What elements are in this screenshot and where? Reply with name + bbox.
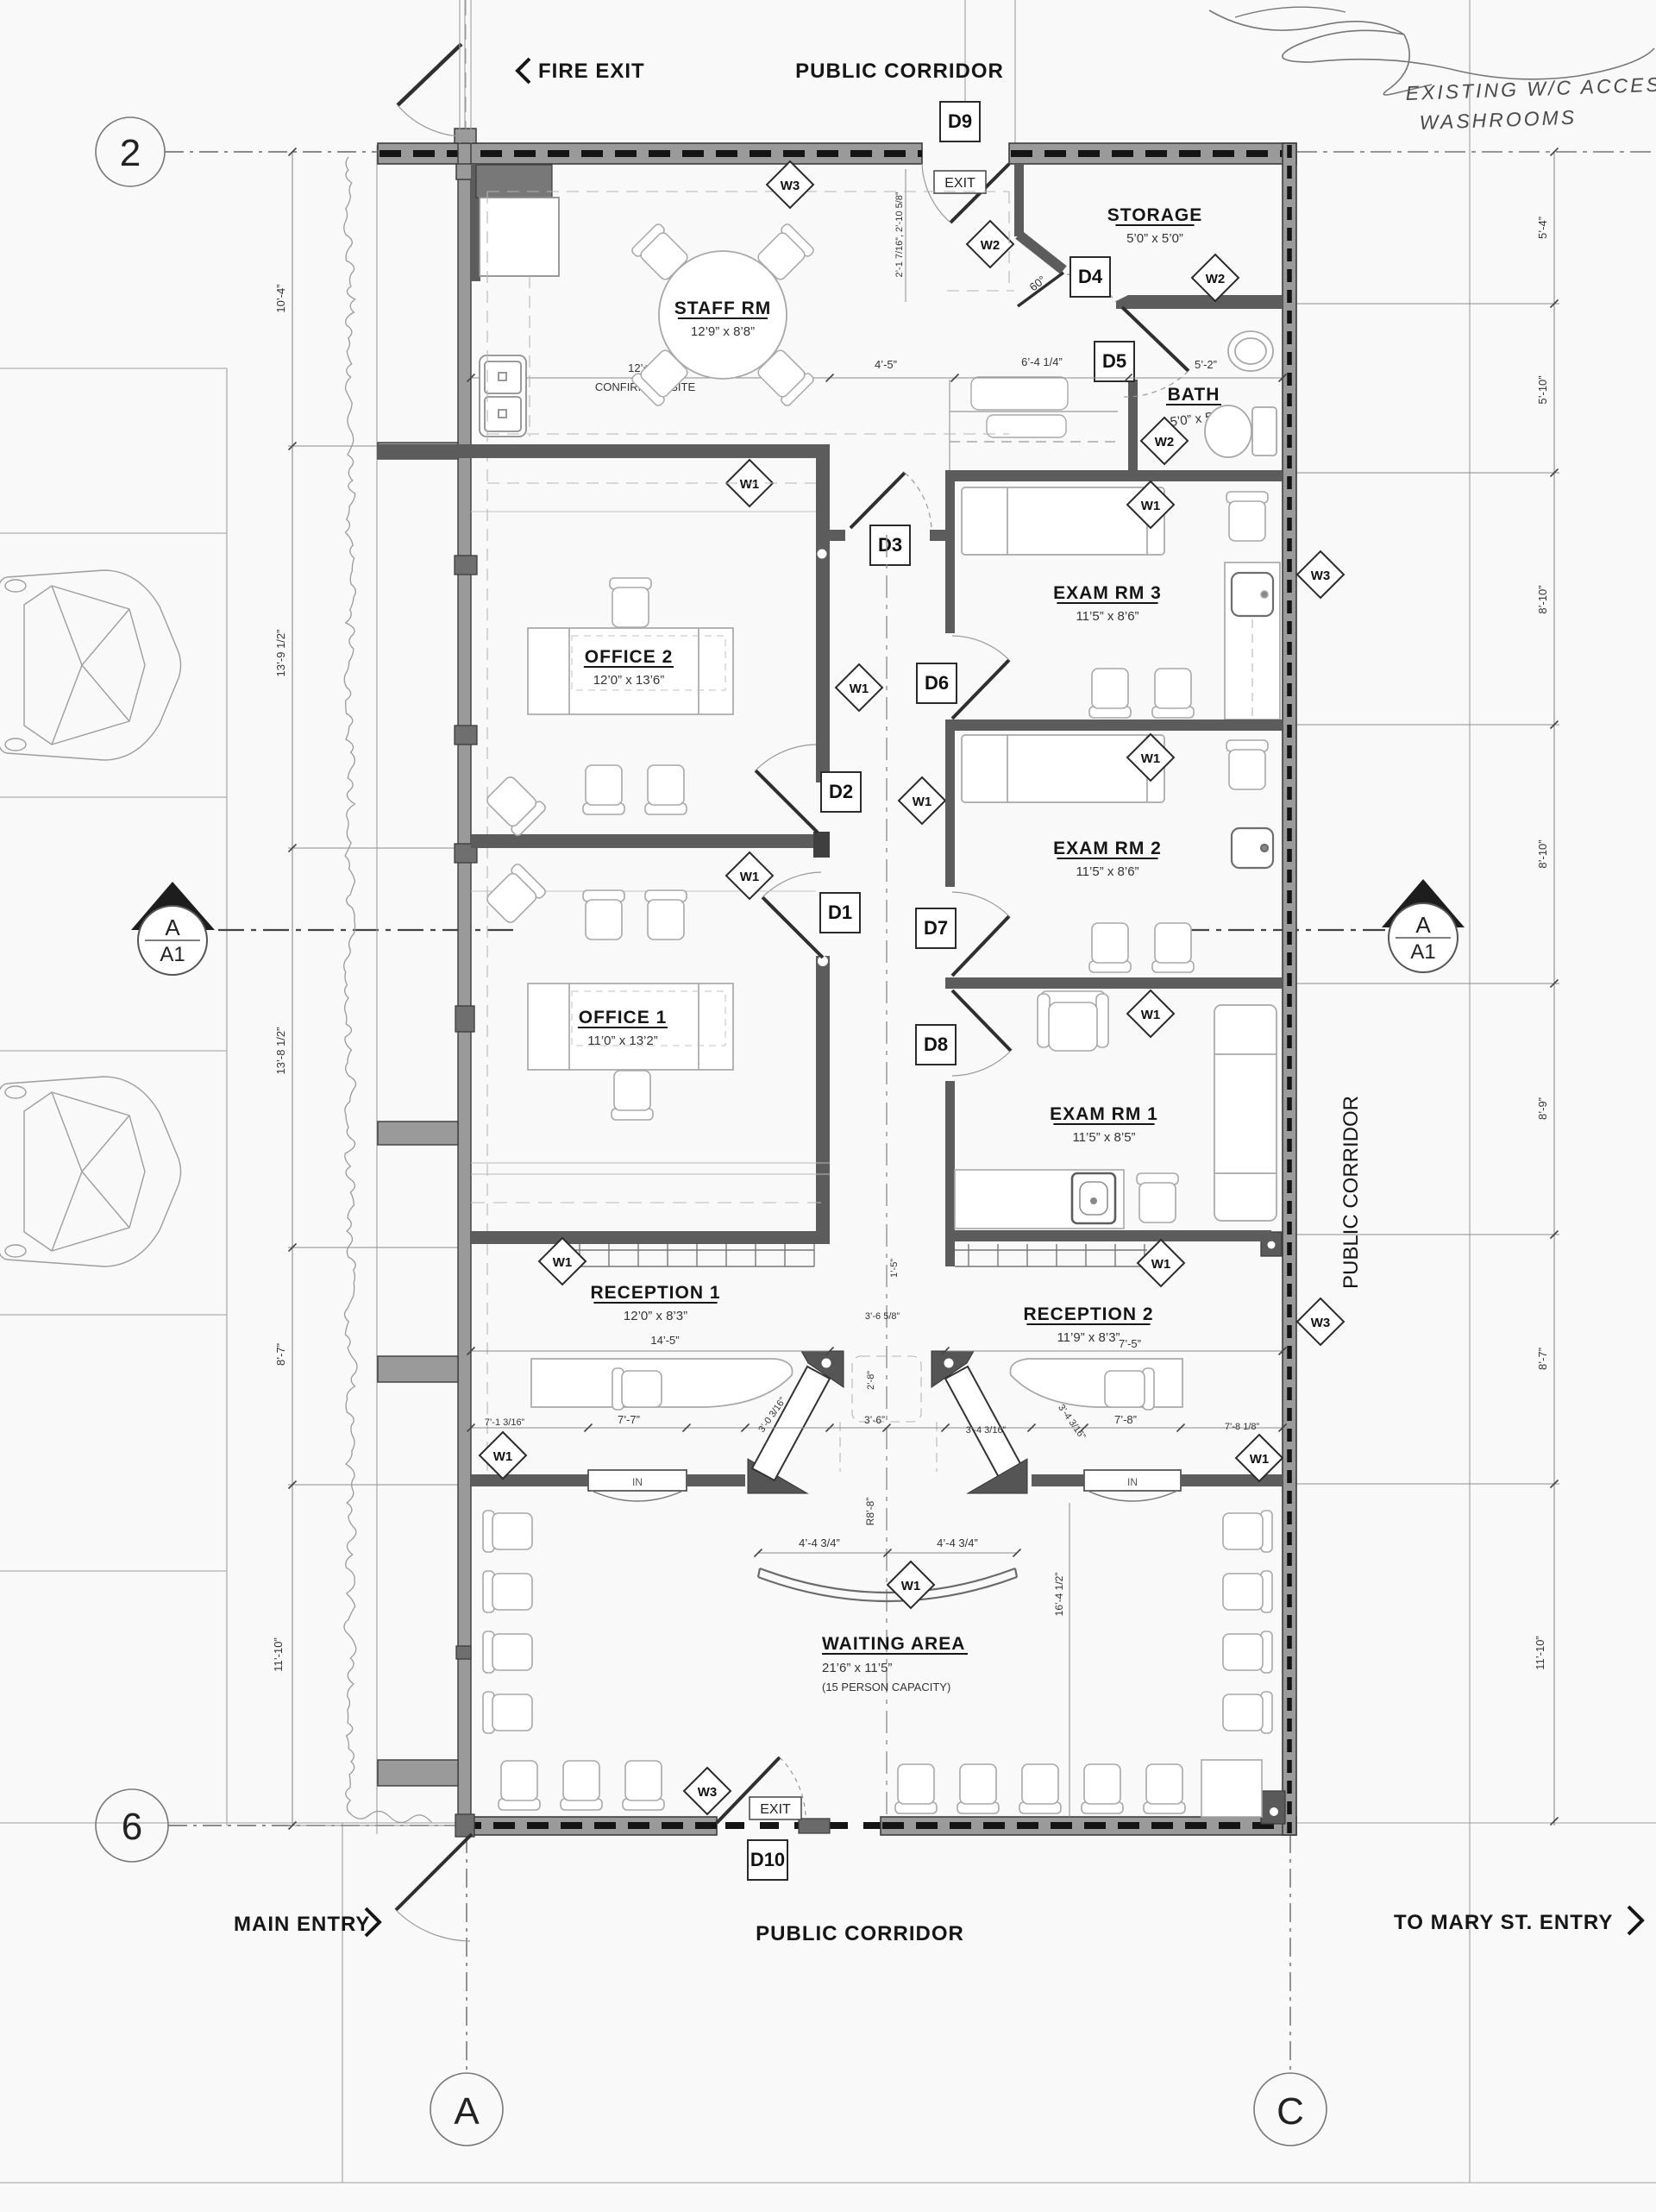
- svg-text:11’5” x 8’6”: 11’5” x 8’6”: [1076, 609, 1138, 624]
- svg-text:OFFICE 1: OFFICE 1: [579, 1008, 668, 1027]
- svg-text:W3: W3: [781, 179, 800, 193]
- svg-text:3’-4 3/16”: 3’-4 3/16”: [966, 1425, 1007, 1436]
- svg-text:IN: IN: [1127, 1476, 1138, 1488]
- svg-text:W1: W1: [553, 1255, 573, 1270]
- svg-text:STAFF RM: STAFF RM: [674, 298, 772, 318]
- svg-text:4’-4 3/4”: 4’-4 3/4”: [937, 1536, 978, 1549]
- svg-text:13’-8 1/2”: 13’-8 1/2”: [274, 1027, 287, 1075]
- svg-text:12’9” x 8’8”: 12’9” x 8’8”: [691, 324, 755, 339]
- svg-text:EXAM RM 1: EXAM RM 1: [1050, 1104, 1158, 1124]
- svg-text:D5: D5: [1102, 350, 1126, 372]
- svg-text:D3: D3: [878, 534, 902, 556]
- svg-text:21’6” x 11’5”: 21’6” x 11’5”: [822, 1661, 892, 1675]
- svg-text:D10: D10: [750, 1849, 785, 1870]
- svg-text:6: 6: [122, 1806, 142, 1848]
- svg-text:12’0” x 8’3”: 12’0” x 8’3”: [624, 1309, 687, 1323]
- svg-text:D8: D8: [924, 1034, 948, 1055]
- svg-text:1’-5”: 1’-5”: [889, 1259, 900, 1278]
- svg-text:A: A: [1415, 912, 1431, 938]
- svg-text:8’-7”: 8’-7”: [1536, 1348, 1549, 1370]
- svg-text:D6: D6: [925, 672, 949, 694]
- svg-text:W1: W1: [1141, 1008, 1161, 1022]
- svg-text:8’-7”: 8’-7”: [274, 1343, 287, 1366]
- svg-text:D2: D2: [829, 781, 853, 802]
- svg-text:EXIT: EXIT: [944, 176, 975, 191]
- svg-text:4’-4 3/4”: 4’-4 3/4”: [799, 1536, 840, 1549]
- svg-text:13’-9 1/2”: 13’-9 1/2”: [274, 630, 287, 677]
- svg-text:11’-10”: 11’-10”: [1534, 1636, 1546, 1670]
- svg-text:D9: D9: [948, 110, 972, 132]
- svg-text:W2: W2: [1155, 435, 1175, 449]
- svg-text:7’-1 3/16”: 7’-1 3/16”: [485, 1417, 525, 1428]
- svg-text:7’-8 1/8”: 7’-8 1/8”: [1225, 1422, 1260, 1432]
- svg-text:16’-4 1/2”: 16’-4 1/2”: [1053, 1573, 1065, 1617]
- svg-text:A1: A1: [160, 943, 185, 966]
- svg-text:5’-10”: 5’-10”: [1536, 375, 1549, 404]
- svg-text:11’-10”: 11’-10”: [272, 1637, 285, 1672]
- svg-text:W1: W1: [1250, 1452, 1270, 1467]
- svg-text:7’-5”: 7’-5”: [1119, 1337, 1141, 1350]
- svg-text:8’-10”: 8’-10”: [1536, 839, 1549, 868]
- svg-text:11’5” x 8’5”: 11’5” x 8’5”: [1072, 1130, 1135, 1145]
- svg-text:W1: W1: [493, 1449, 513, 1464]
- svg-text:2’-8”: 2’-8”: [866, 1371, 876, 1390]
- svg-text:D1: D1: [828, 902, 852, 923]
- svg-text:5’0” x 5’0”: 5’0” x 5’0”: [1126, 231, 1183, 246]
- svg-text:STORAGE: STORAGE: [1107, 205, 1202, 225]
- svg-text:W3: W3: [1311, 1316, 1331, 1330]
- svg-text:5’-2”: 5’-2”: [1195, 358, 1217, 371]
- svg-text:11’5” x 8’6”: 11’5” x 8’6”: [1076, 864, 1138, 879]
- svg-text:3’-6 5/8”: 3’-6 5/8”: [865, 1311, 900, 1322]
- svg-text:PUBLIC CORRIDOR: PUBLIC CORRIDOR: [756, 1922, 964, 1945]
- svg-text:C: C: [1276, 2090, 1304, 2133]
- svg-text:7’-8”: 7’-8”: [1114, 1413, 1137, 1426]
- svg-text:IN: IN: [632, 1476, 643, 1488]
- svg-text:EXAM RM 2: EXAM RM 2: [1053, 839, 1162, 858]
- svg-text:PUBLIC CORRIDOR: PUBLIC CORRIDOR: [795, 60, 1004, 83]
- svg-text:D7: D7: [924, 917, 948, 939]
- svg-text:PUBLIC CORRIDOR: PUBLIC CORRIDOR: [1339, 1096, 1363, 1289]
- svg-text:W2: W2: [1206, 272, 1226, 286]
- svg-text:W3: W3: [698, 1785, 718, 1800]
- svg-text:TO MARY ST. ENTRY: TO MARY ST. ENTRY: [1394, 1911, 1613, 1934]
- svg-text:W1: W1: [901, 1579, 921, 1593]
- svg-text:2’-1 7/16”, 2’-10 5/8”: 2’-1 7/16”, 2’-10 5/8”: [894, 192, 905, 277]
- svg-text:5’-4”: 5’-4”: [1536, 217, 1549, 239]
- svg-text:RECEPTION 1: RECEPTION 1: [590, 1283, 720, 1303]
- svg-text:6’-4 1/4”: 6’-4 1/4”: [1021, 355, 1063, 368]
- svg-text:WAITING AREA: WAITING AREA: [822, 1634, 965, 1654]
- svg-text:W1: W1: [1141, 499, 1161, 513]
- svg-text:A1: A1: [1410, 940, 1435, 964]
- svg-text:EXIT: EXIT: [760, 1802, 791, 1817]
- svg-text:8’-10”: 8’-10”: [1536, 585, 1549, 613]
- svg-text:FIRE EXIT: FIRE EXIT: [538, 60, 645, 83]
- svg-text:OFFICE 2: OFFICE 2: [585, 647, 674, 667]
- svg-text:12’0” x 13’6”: 12’0” x 13’6”: [593, 673, 665, 688]
- svg-text:W1: W1: [1141, 751, 1161, 766]
- svg-text:14’-5”: 14’-5”: [650, 1334, 679, 1347]
- svg-text:W1: W1: [850, 682, 869, 696]
- svg-text:2: 2: [120, 132, 141, 174]
- svg-text:W2: W2: [981, 238, 1000, 253]
- svg-text:RECEPTION 2: RECEPTION 2: [1023, 1304, 1153, 1324]
- svg-text:W1: W1: [740, 870, 760, 884]
- svg-text:10’-4”: 10’-4”: [274, 284, 287, 312]
- svg-text:BATH: BATH: [1168, 385, 1220, 405]
- svg-text:8’-9”: 8’-9”: [1536, 1097, 1549, 1120]
- svg-text:D4: D4: [1078, 266, 1103, 287]
- svg-text:7’-7”: 7’-7”: [618, 1413, 640, 1426]
- svg-text:MAIN ENTRY: MAIN ENTRY: [234, 1913, 370, 1936]
- svg-text:W3: W3: [1311, 569, 1331, 583]
- svg-text:EXAM RM 3: EXAM RM 3: [1053, 583, 1162, 603]
- svg-text:4’-5”: 4’-5”: [875, 358, 897, 371]
- svg-text:(15 PERSON CAPACITY): (15 PERSON CAPACITY): [822, 1681, 950, 1694]
- svg-text:3’-6”: 3’-6”: [864, 1414, 885, 1426]
- svg-text:W1: W1: [1151, 1257, 1171, 1272]
- svg-text:W1: W1: [740, 477, 760, 492]
- svg-text:11’9” x 8’3”: 11’9” x 8’3”: [1057, 1330, 1120, 1345]
- svg-text:A: A: [454, 2090, 480, 2133]
- svg-text:A: A: [165, 914, 180, 940]
- svg-text:R8’-8”: R8’-8”: [864, 1498, 876, 1526]
- svg-text:11’0” x 13’2”: 11’0” x 13’2”: [587, 1034, 657, 1048]
- svg-text:W1: W1: [913, 795, 932, 809]
